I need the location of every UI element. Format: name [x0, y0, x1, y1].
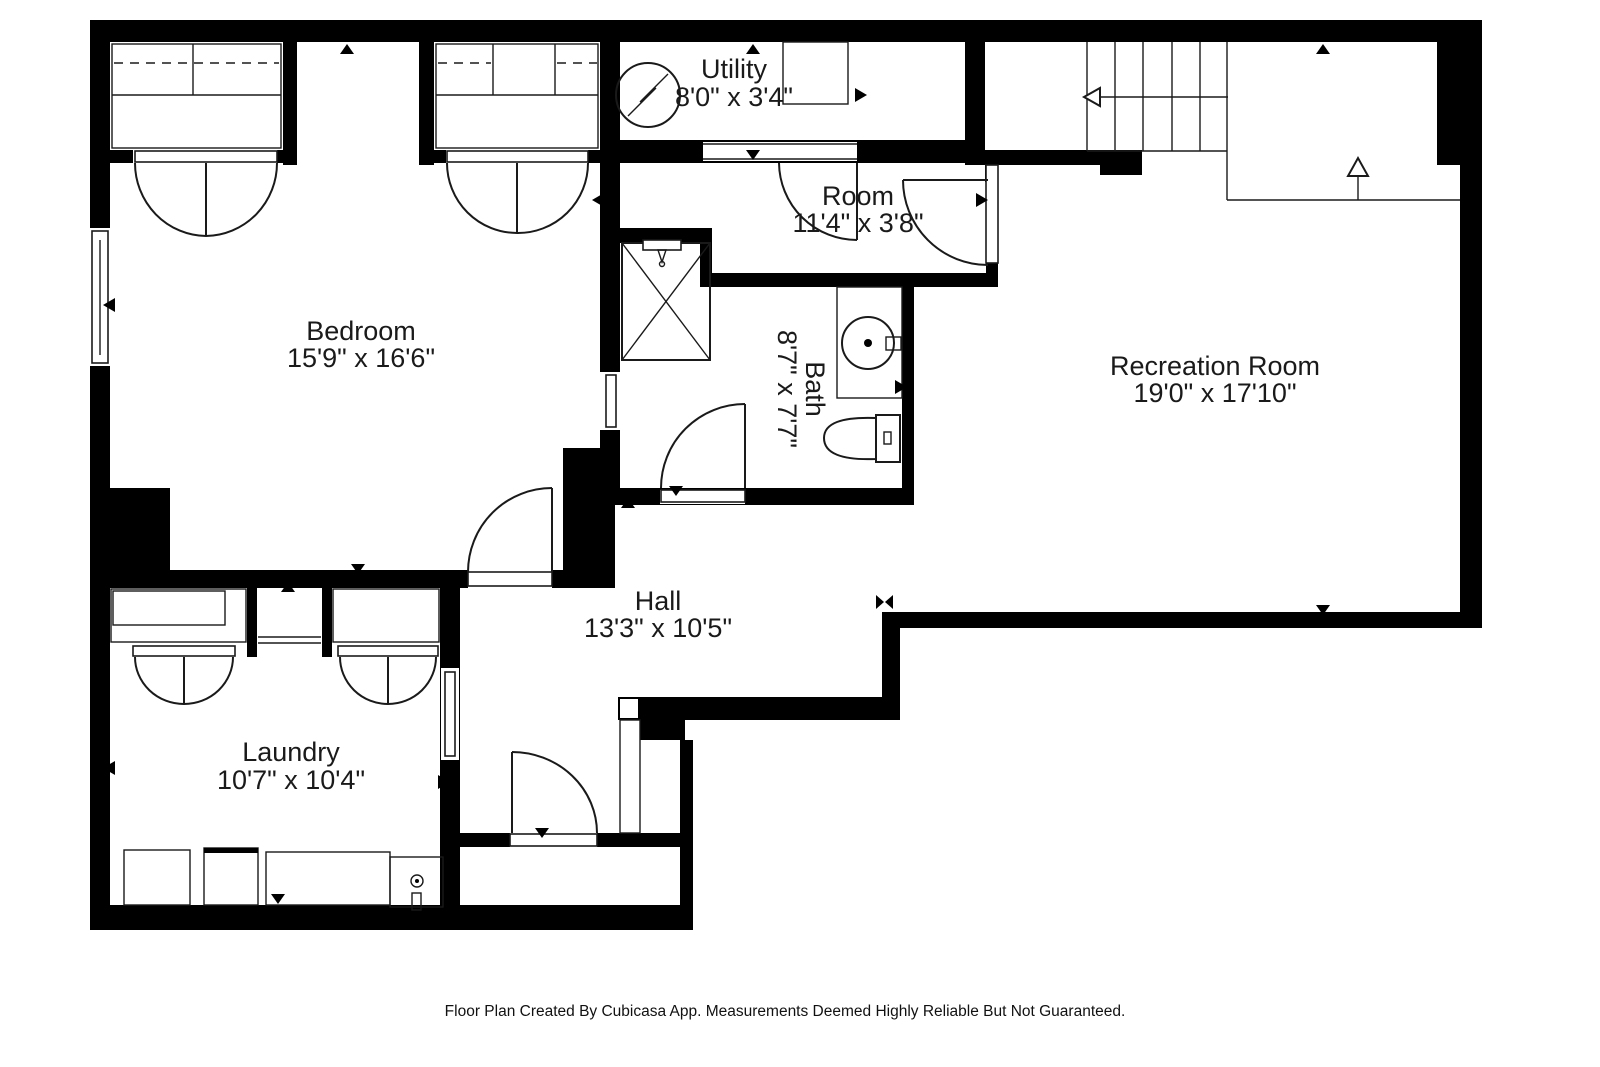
room-labels: Utility 8'0" x 3'4" Room 11'4" x 3'8" Be…: [217, 54, 1320, 795]
bedroom-label: Bedroom: [306, 316, 416, 346]
room-dims: 11'4" x 3'8": [792, 208, 923, 238]
washer-icon: [124, 850, 190, 905]
utility-label: Utility: [701, 54, 767, 84]
hall-dims: 13'3" x 10'5": [584, 613, 732, 643]
recreation-label: Recreation Room: [1110, 351, 1320, 381]
toilet-icon: [824, 415, 900, 462]
electrical-panel-icon: [616, 63, 680, 127]
floor-plan-page: Utility 8'0" x 3'4" Room 11'4" x 3'8" Be…: [0, 0, 1600, 1067]
bath-label: Bath: [800, 361, 830, 417]
dryer-icon: [204, 848, 258, 905]
bath-dims: 8'7" x 7'7": [772, 330, 802, 448]
recreation-dims: 19'0" x 17'10": [1133, 378, 1296, 408]
shower-icon: [622, 240, 710, 360]
sink-icon: [837, 287, 902, 398]
laundry-label: Laundry: [242, 737, 340, 767]
bedroom-dims: 15'9" x 16'6": [287, 343, 435, 373]
laundry-sink-icon: [266, 852, 443, 910]
floor-plan-canvas: Utility 8'0" x 3'4" Room 11'4" x 3'8" Be…: [0, 0, 1600, 1067]
stairs-landing: [1227, 158, 1460, 200]
hall-label: Hall: [635, 586, 682, 616]
laundry-dims: 10'7" x 10'4": [217, 765, 365, 795]
footer-disclaimer: Floor Plan Created By Cubicasa App. Meas…: [445, 1003, 1126, 1020]
room-label: Room: [822, 181, 894, 211]
utility-dims: 8'0" x 3'4": [675, 82, 793, 112]
stairs-up-arrow-icon: [1348, 158, 1368, 200]
stairs-direction-arrow-icon: [1084, 88, 1228, 106]
staircase: [1084, 42, 1460, 200]
